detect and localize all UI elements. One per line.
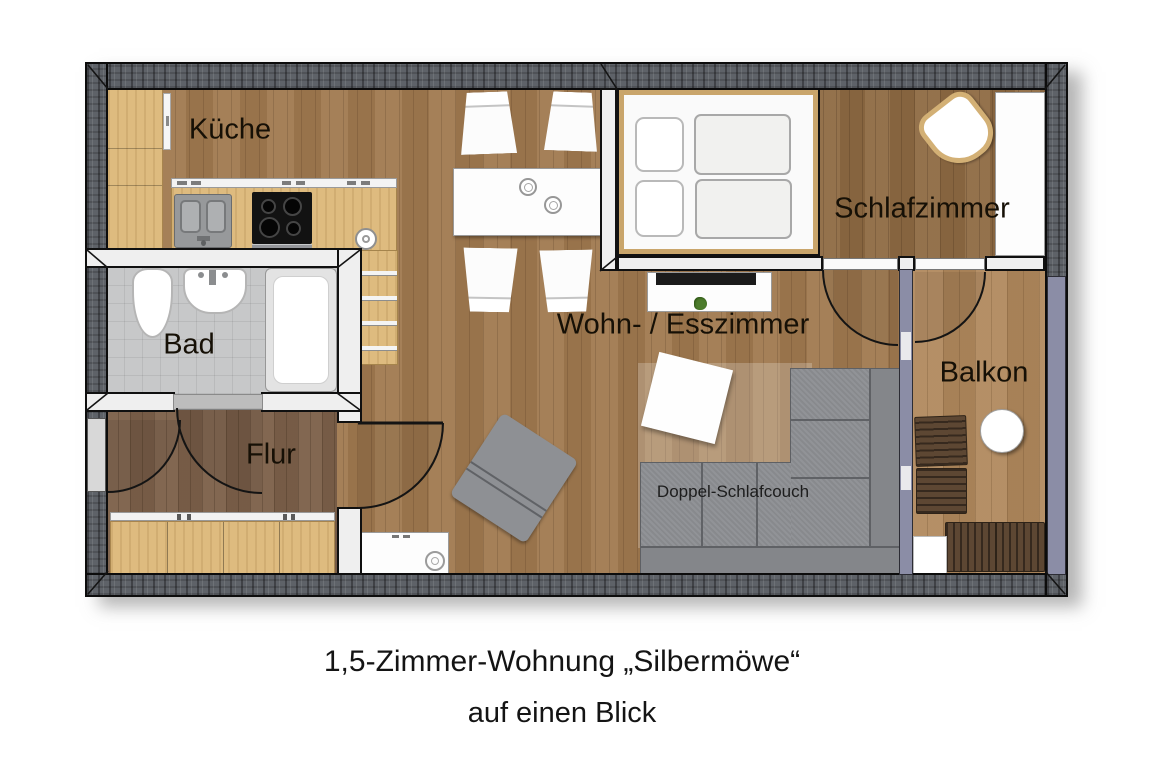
faucet-knob xyxy=(201,240,206,246)
tap-knob xyxy=(198,272,204,278)
chair-backrest xyxy=(550,91,595,108)
hall-sideboard xyxy=(110,521,335,575)
dresser-handle xyxy=(392,535,399,538)
tap-knob xyxy=(222,272,228,278)
burner xyxy=(261,199,276,214)
sink-basin xyxy=(180,200,201,233)
decor-bowl xyxy=(425,551,445,571)
duvet xyxy=(695,179,792,239)
bedroom-door-leaf xyxy=(823,258,898,270)
sofa-seam xyxy=(791,419,869,421)
hall-sideboard-top xyxy=(110,512,335,521)
tv xyxy=(656,273,756,285)
room-label-bedroom: Schlafzimmer xyxy=(834,193,1010,226)
wall-bottom xyxy=(85,573,1068,597)
shelf xyxy=(359,296,397,301)
bench-divider xyxy=(995,523,997,571)
room-label-kitchen: Küche xyxy=(189,114,271,147)
counter-fitting xyxy=(361,181,370,185)
counter-fitting xyxy=(347,181,356,185)
dining-chair xyxy=(462,248,517,313)
bedroom-wall-bottom-c xyxy=(985,256,1045,271)
duvet xyxy=(694,114,791,175)
chair-seam xyxy=(470,461,547,512)
cabinet-seam xyxy=(108,185,162,186)
dresser xyxy=(357,532,449,575)
plate-ring xyxy=(362,235,370,243)
room-label-bathroom: Bad xyxy=(163,329,215,362)
cabinet-handle xyxy=(166,116,169,126)
kitchen-sink xyxy=(174,194,232,248)
chair-seam xyxy=(466,468,543,519)
cabinet-seam xyxy=(108,148,162,149)
shelf xyxy=(359,321,397,326)
handle xyxy=(291,514,295,520)
balcony-bench xyxy=(945,522,1045,572)
room-label-balcony: Balkon xyxy=(940,357,1029,390)
counter-fitting xyxy=(282,181,291,185)
balcony-door-leaf xyxy=(915,258,985,270)
wall-left xyxy=(85,62,108,597)
shower-tray xyxy=(273,276,329,384)
sofa-seam xyxy=(701,463,703,546)
balcony-chair xyxy=(916,468,967,514)
caption-subtitle: auf einen Blick xyxy=(0,697,1124,730)
sink-basin xyxy=(206,200,226,233)
room-label-hallway: Flur xyxy=(246,439,296,472)
bathroom-door-leaf xyxy=(173,394,263,410)
sofa-label: Doppel-Schlafcouch xyxy=(657,482,809,502)
bedroom-wall-left xyxy=(600,88,617,271)
corner-sofa-bottom xyxy=(640,462,791,577)
dining-chair xyxy=(544,91,599,152)
dining-chair xyxy=(459,91,517,155)
pillow xyxy=(635,117,684,172)
balcony-round-table xyxy=(980,409,1024,453)
dresser-handle xyxy=(403,535,410,538)
pillow xyxy=(635,180,684,237)
kitchen-cabinet-column xyxy=(108,90,163,250)
sofa-backrest xyxy=(641,546,791,576)
balcony-chair xyxy=(914,415,968,467)
plate-ring xyxy=(549,201,558,210)
bathroom-wall-bottom-right xyxy=(261,392,362,412)
corner-sofa-right xyxy=(790,368,900,577)
decor-bowl-ring xyxy=(431,557,439,565)
dining-chair xyxy=(539,250,593,313)
page: { "rooms": { "kitchen": { "label": "Küch… xyxy=(0,0,1152,768)
floorplan: Küche Bad Flur Wohn- / Esszimmer Schlafz… xyxy=(85,62,1068,597)
bathroom-wall-top xyxy=(85,248,362,268)
burner xyxy=(286,221,301,236)
sideboard-divider xyxy=(223,522,224,574)
wardrobe xyxy=(995,92,1045,256)
burner xyxy=(259,217,280,238)
plate xyxy=(544,196,562,214)
handle xyxy=(283,514,287,520)
sofa-backrest xyxy=(791,546,899,576)
tall-cabinet xyxy=(163,93,171,150)
stove-cooktop xyxy=(252,192,312,244)
dining-table xyxy=(453,168,603,236)
balcony-glass-wall xyxy=(899,269,913,575)
balcony-railing xyxy=(1047,276,1066,575)
burner xyxy=(283,197,302,216)
balcony-side-table xyxy=(913,536,947,575)
caption-title: 1,5-Zimmer-Wohnung „Silbermöwe“ xyxy=(0,645,1124,679)
sideboard-divider xyxy=(279,522,280,574)
kitchen-counter-edge xyxy=(171,178,397,188)
glass-panel xyxy=(901,332,911,360)
room-label-living-dining: Wohn- / Esszimmer xyxy=(557,309,809,342)
shelf xyxy=(359,346,397,351)
chair-backrest xyxy=(467,297,513,313)
counter-fitting xyxy=(191,181,201,185)
entrance-door-frame xyxy=(87,418,106,492)
sofa-seam xyxy=(791,477,869,479)
hallway-wall-right xyxy=(337,507,362,575)
handle xyxy=(177,514,181,520)
shelf xyxy=(359,271,397,276)
counter-fitting xyxy=(296,181,305,185)
sofa-seam xyxy=(756,463,758,546)
faucet xyxy=(209,270,216,285)
double-bed xyxy=(617,88,820,256)
plate-ring xyxy=(524,183,533,192)
washbasin xyxy=(183,268,247,314)
chair-backrest xyxy=(463,91,511,108)
counter-plate xyxy=(355,228,377,250)
shelf-unit xyxy=(358,250,398,365)
sideboard-divider xyxy=(167,522,168,574)
counter-fitting xyxy=(177,181,187,185)
glass-panel xyxy=(901,466,911,490)
wall-top xyxy=(85,62,1068,90)
plate xyxy=(519,178,537,196)
shower xyxy=(265,268,337,392)
bedroom-wall-bottom-a xyxy=(617,256,823,271)
tv-sideboard xyxy=(647,272,772,312)
sofa-backrest xyxy=(869,369,899,576)
handle xyxy=(187,514,191,520)
bathroom-wall-bottom-left xyxy=(85,392,175,412)
